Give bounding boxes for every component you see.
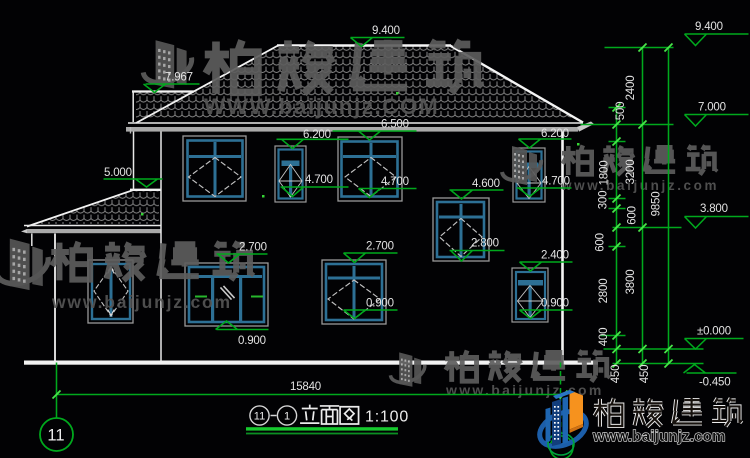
- svg-text:9.400: 9.400: [695, 21, 723, 33]
- svg-text:400: 400: [598, 328, 610, 347]
- svg-text:7.000: 7.000: [698, 102, 726, 114]
- svg-text:0.900: 0.900: [238, 335, 266, 347]
- svg-text:www.baijunjz.com: www.baijunjz.com: [560, 178, 719, 193]
- svg-text:1: 1: [284, 411, 290, 423]
- svg-text:-0.450: -0.450: [699, 377, 730, 389]
- svg-text:2.700: 2.700: [366, 241, 394, 253]
- svg-text:4.700: 4.700: [542, 176, 570, 188]
- svg-text:15840: 15840: [290, 381, 321, 393]
- svg-text:2.700: 2.700: [239, 242, 267, 254]
- svg-text:450: 450: [639, 365, 651, 384]
- svg-text:450: 450: [610, 365, 622, 384]
- svg-text:600: 600: [627, 206, 639, 225]
- svg-text:0.900: 0.900: [541, 298, 569, 310]
- svg-text:WWW.baijunjz.COM: WWW.baijunjz.COM: [204, 94, 439, 119]
- svg-text:1800: 1800: [599, 161, 611, 186]
- svg-text:500: 500: [615, 102, 627, 121]
- svg-text:9.400: 9.400: [372, 25, 400, 37]
- svg-text:9850: 9850: [651, 192, 663, 217]
- svg-text:7.967: 7.967: [165, 72, 193, 84]
- svg-text:www.baijunjz.com: www.baijunjz.com: [51, 292, 232, 312]
- svg-text:11: 11: [254, 411, 265, 423]
- svg-text:±0.000: ±0.000: [697, 326, 731, 338]
- svg-text:4.600: 4.600: [472, 178, 500, 190]
- svg-text:2400: 2400: [625, 76, 637, 101]
- svg-text:3200: 3200: [625, 160, 637, 185]
- svg-text:6.200: 6.200: [303, 129, 331, 141]
- svg-text:2.400: 2.400: [541, 250, 569, 262]
- svg-text:5.000: 5.000: [104, 167, 132, 179]
- svg-text:3.800: 3.800: [700, 203, 728, 215]
- svg-text:1:100: 1:100: [365, 409, 409, 426]
- svg-text:0.900: 0.900: [366, 298, 394, 310]
- svg-text:11: 11: [47, 427, 64, 445]
- svg-text:www.baijunjz.com: www.baijunjz.com: [592, 428, 726, 445]
- svg-text:2800: 2800: [598, 279, 610, 304]
- svg-text:2.800: 2.800: [471, 238, 499, 250]
- svg-text:3800: 3800: [625, 270, 637, 295]
- svg-text:600: 600: [595, 233, 607, 252]
- svg-text:4.700: 4.700: [381, 176, 409, 188]
- svg-text:6.500: 6.500: [381, 119, 409, 131]
- svg-text:300: 300: [598, 191, 610, 210]
- svg-text:6.200: 6.200: [541, 128, 569, 140]
- svg-text:4.700: 4.700: [305, 174, 333, 186]
